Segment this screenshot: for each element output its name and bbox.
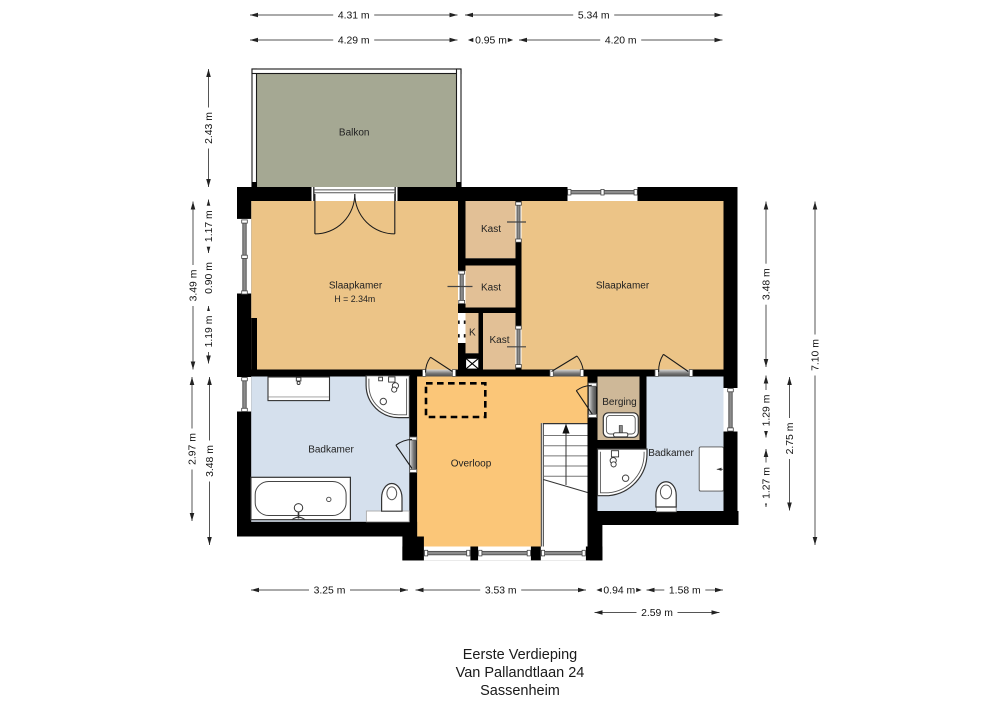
svg-text:1.27 m: 1.27 m xyxy=(761,467,772,499)
svg-text:5.34 m: 5.34 m xyxy=(578,10,610,21)
svg-text:1.29 m: 1.29 m xyxy=(761,395,772,427)
svg-text:2.97 m: 2.97 m xyxy=(187,433,198,465)
svg-text:Van Pallandtlaan 24: Van Pallandtlaan 24 xyxy=(456,665,585,681)
svg-text:2.75 m: 2.75 m xyxy=(785,423,796,455)
svg-text:3.53 m: 3.53 m xyxy=(485,585,517,596)
svg-text:3.25 m: 3.25 m xyxy=(314,585,346,596)
svg-text:4.31 m: 4.31 m xyxy=(338,10,370,21)
svg-text:2.59 m: 2.59 m xyxy=(641,608,673,619)
svg-text:0.90 m: 0.90 m xyxy=(204,262,215,294)
svg-text:K: K xyxy=(469,327,476,338)
svg-text:Slaapkamer: Slaapkamer xyxy=(329,281,383,292)
svg-text:Badkamer: Badkamer xyxy=(308,445,354,456)
svg-text:Kast: Kast xyxy=(481,283,501,294)
svg-text:Overloop: Overloop xyxy=(451,458,492,469)
svg-text:Kast: Kast xyxy=(489,335,509,346)
svg-text:1.17 m: 1.17 m xyxy=(204,210,215,242)
svg-text:7.10 m: 7.10 m xyxy=(810,339,821,371)
svg-text:Balkon: Balkon xyxy=(339,128,370,139)
svg-text:H = 2.34m: H = 2.34m xyxy=(334,294,375,304)
svg-text:Slaapkamer: Slaapkamer xyxy=(596,281,650,292)
svg-text:3.48 m: 3.48 m xyxy=(761,268,772,300)
svg-text:Berging: Berging xyxy=(602,397,636,408)
svg-text:0.94 m: 0.94 m xyxy=(603,585,635,596)
svg-text:4.20 m: 4.20 m xyxy=(605,35,637,46)
svg-text:3.48 m: 3.48 m xyxy=(205,445,216,477)
svg-text:1.19 m: 1.19 m xyxy=(204,316,215,348)
svg-text:1.58 m: 1.58 m xyxy=(669,585,701,596)
svg-text:Badkamer: Badkamer xyxy=(648,448,694,459)
svg-text:Kast: Kast xyxy=(481,224,501,235)
svg-text:0.95 m: 0.95 m xyxy=(475,35,507,46)
svg-text:3.49 m: 3.49 m xyxy=(188,270,199,302)
svg-text:Sassenheim: Sassenheim xyxy=(480,683,560,699)
svg-text:4.29 m: 4.29 m xyxy=(338,35,370,46)
svg-text:Eerste Verdieping: Eerste Verdieping xyxy=(463,647,577,663)
svg-text:2.43 m: 2.43 m xyxy=(204,112,215,144)
